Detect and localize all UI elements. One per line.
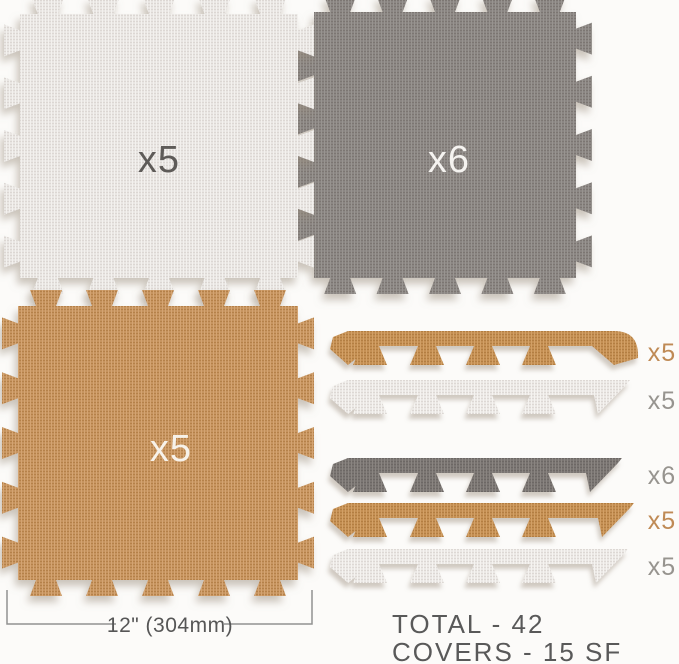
tan-corner-strip-count-label: x5	[648, 339, 676, 367]
gray-strip-count-label: x6	[648, 462, 676, 490]
white-strip-2-count-label: x5	[648, 553, 676, 581]
gray-tile-count-label: x6	[428, 139, 470, 181]
white-strip-1-count-label: x5	[648, 387, 676, 415]
coverage-text: COVERS - 15 SF	[392, 637, 622, 664]
tan-tile-count-label: x5	[150, 428, 192, 470]
tan-strip-count-label: x5	[648, 507, 676, 535]
product-contents-figure: x5 x6 x5 x5 x5 x6 x5 x5 12" (304mm) TOTA…	[0, 0, 679, 664]
white-tile-count-label: x5	[138, 139, 180, 181]
dimension-label: 12" (304mm)	[107, 614, 233, 637]
foam-mat-diagram: x5 x6 x5 x5 x5 x6 x5 x5 12" (304mm) TOTA…	[0, 0, 679, 664]
total-count-text: TOTAL - 42	[392, 609, 544, 639]
